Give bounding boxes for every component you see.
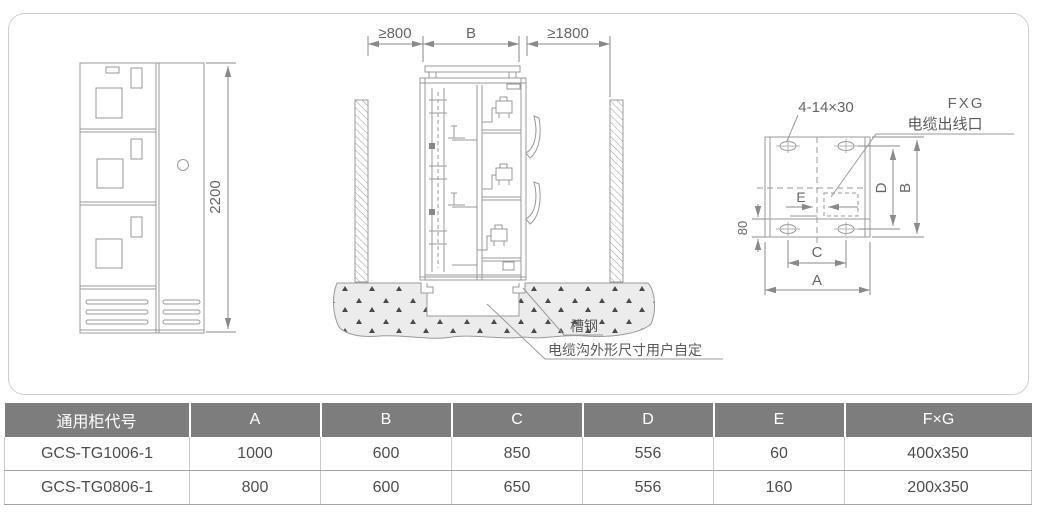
cell-c: 850 bbox=[452, 437, 583, 471]
cell-b: 600 bbox=[321, 437, 452, 471]
dim-a-label: A bbox=[812, 272, 822, 289]
right-wall bbox=[610, 100, 623, 282]
cell-c: 650 bbox=[452, 471, 583, 505]
col-header-e: E bbox=[714, 403, 845, 437]
dim-left-clearance-label: ≥800 bbox=[378, 25, 411, 42]
fxg-label: FXG bbox=[948, 95, 985, 112]
col-header-c: C bbox=[452, 403, 583, 437]
table-row: GCS-TG0806-1 800 600 650 556 160 200x350 bbox=[5, 471, 1032, 505]
dim-right-clearance-label: ≥1800 bbox=[547, 25, 589, 42]
dim-e-label: E bbox=[796, 189, 805, 205]
cell-e: 160 bbox=[714, 471, 845, 505]
dim-c-label: C bbox=[812, 244, 823, 261]
dim-d-label: D bbox=[873, 182, 890, 193]
cell-b: 600 bbox=[321, 471, 452, 505]
cell-d: 556 bbox=[583, 471, 714, 505]
cell-model: GCS-TG1006-1 bbox=[5, 437, 190, 471]
installation-drawing: 2200 ≥800 B ≥1800 bbox=[0, 0, 1038, 400]
cell-fxg: 400x350 bbox=[845, 437, 1032, 471]
cable-outlet-label: 电缆出线口 bbox=[907, 116, 982, 133]
dim-height-label: 2200 bbox=[207, 180, 224, 213]
table-header-row: 通用柜代号 A B C D E F×G bbox=[5, 403, 1032, 437]
cell-a: 1000 bbox=[190, 437, 321, 471]
dim-depth-label: B bbox=[466, 25, 476, 42]
channel-steel-label: 槽钢 bbox=[570, 318, 598, 334]
spec-table: 通用柜代号 A B C D E F×G GCS-TG1006-1 1000 60… bbox=[4, 403, 1032, 505]
cell-d: 556 bbox=[583, 437, 714, 471]
col-header-fxg: F×G bbox=[845, 403, 1032, 437]
mounting-holes-label: 4-14×30 bbox=[798, 99, 853, 116]
catalog-page: 2200 ≥800 B ≥1800 bbox=[0, 0, 1038, 519]
cell-fxg: 200x350 bbox=[845, 471, 1032, 505]
dim-80-label: 80 bbox=[735, 221, 750, 235]
col-header-model: 通用柜代号 bbox=[5, 403, 190, 437]
left-wall bbox=[355, 100, 368, 282]
table-row: GCS-TG1006-1 1000 600 850 556 60 400x350 bbox=[5, 437, 1032, 471]
dim-b-label: B bbox=[897, 183, 914, 193]
col-header-a: A bbox=[190, 403, 321, 437]
cell-a: 800 bbox=[190, 471, 321, 505]
cell-model: GCS-TG0806-1 bbox=[5, 471, 190, 505]
col-header-b: B bbox=[321, 403, 452, 437]
cell-e: 60 bbox=[714, 437, 845, 471]
col-header-d: D bbox=[583, 403, 714, 437]
cable-trench-label: 电缆沟外形尺寸用户自定 bbox=[548, 342, 702, 358]
